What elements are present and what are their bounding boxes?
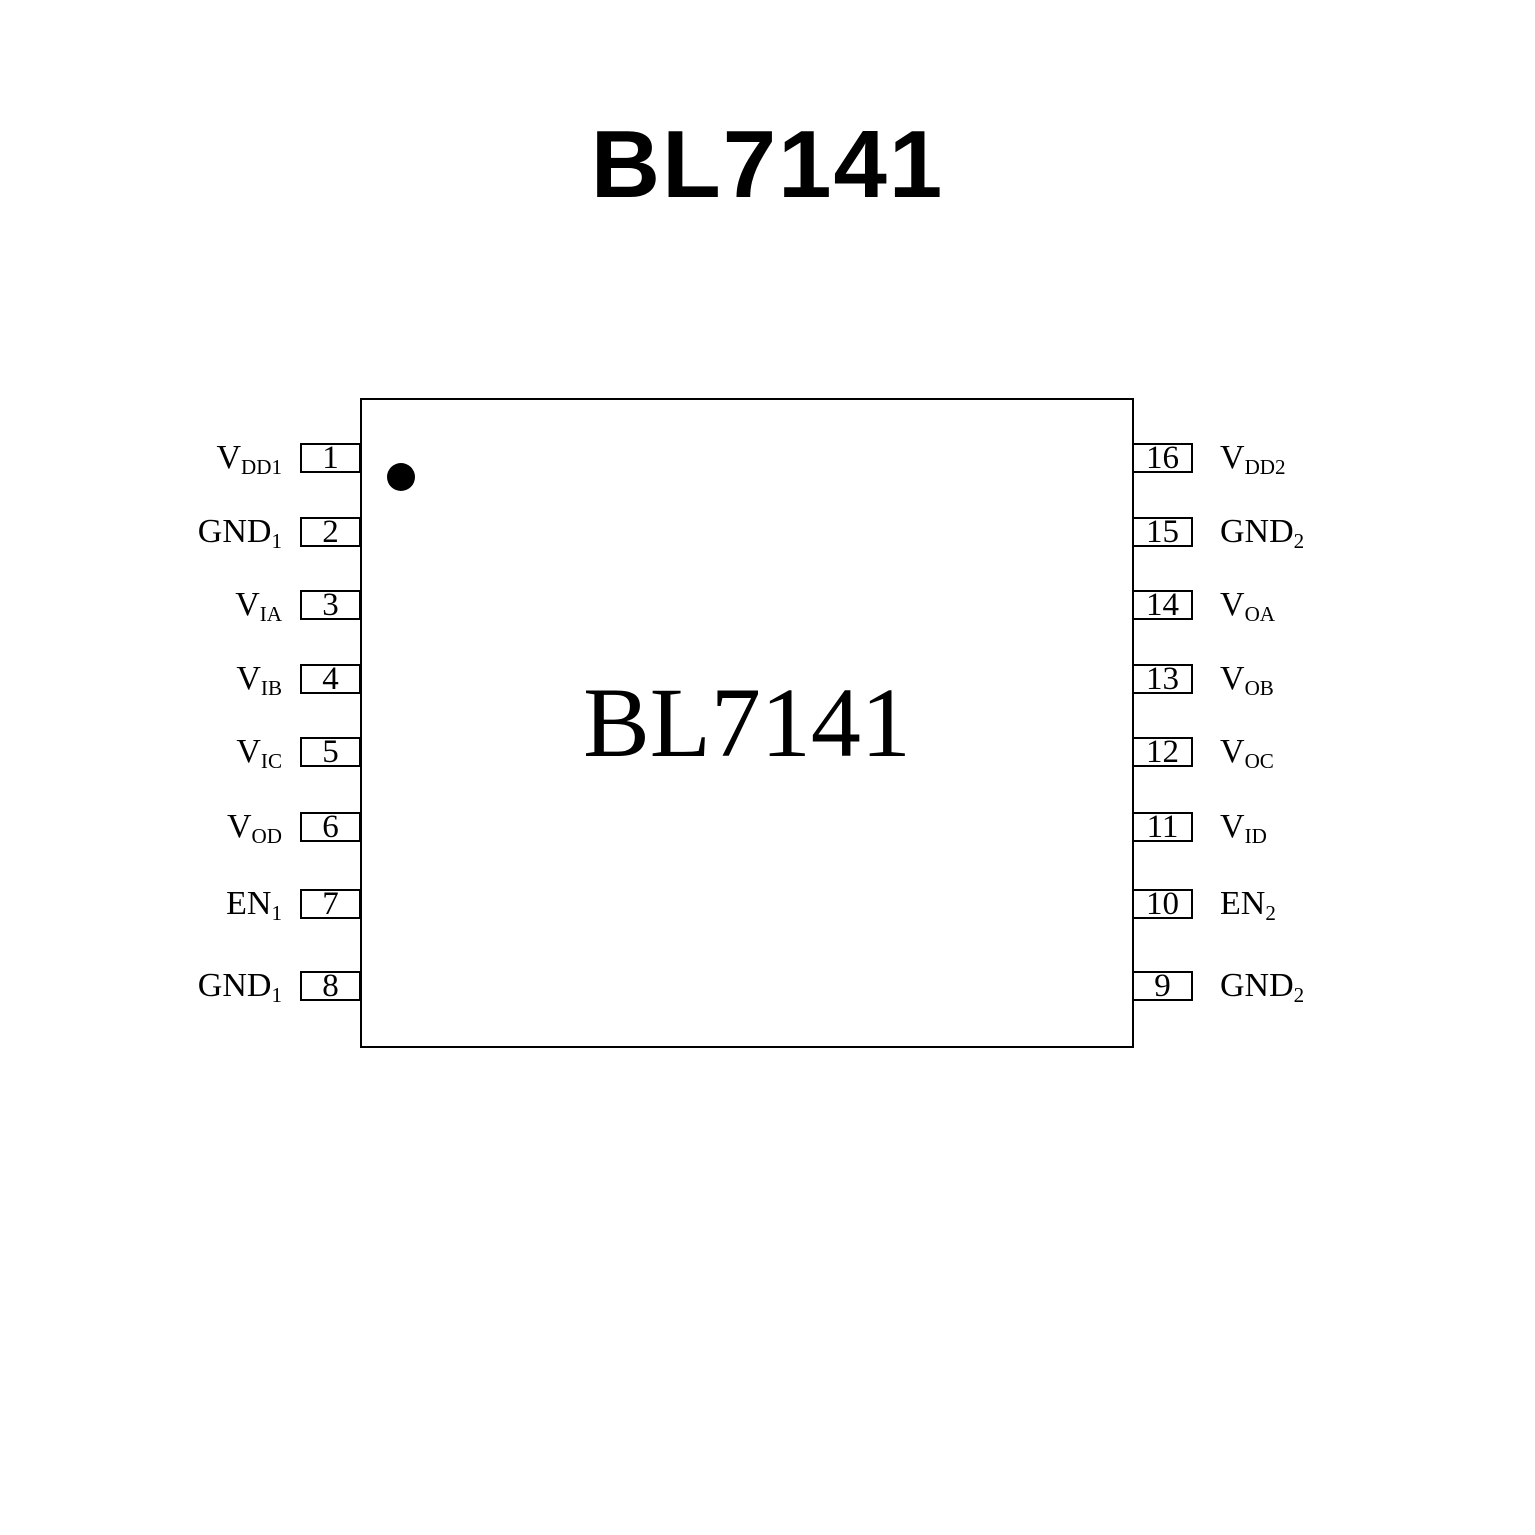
pin-label: VIC [58, 735, 300, 769]
pin-number: 5 [322, 736, 339, 769]
pin-row-right-12: 12 VOC [1132, 737, 1477, 767]
pin-number: 4 [322, 663, 339, 696]
pin-number: 15 [1146, 516, 1179, 549]
pin-row-left-7: EN1 7 [58, 889, 361, 919]
pin-row-right-16: 16 VDD2 [1132, 443, 1477, 473]
pin-row-left-3: VIA 3 [58, 590, 361, 620]
pin-label: VIB [58, 662, 300, 696]
page-title: BL7141 [0, 112, 1535, 218]
pin-box: 10 [1132, 889, 1193, 919]
pin-row-right-10: 10 EN2 [1132, 889, 1477, 919]
pin-label: VOA [1193, 588, 1275, 622]
pin-row-right-9: 9 GND2 [1132, 971, 1477, 1001]
pin-label: VIA [58, 588, 300, 622]
pin-box: 4 [300, 664, 361, 694]
pin-number: 2 [322, 516, 339, 549]
pin-number: 14 [1146, 589, 1179, 622]
pin-label: VDD2 [1193, 441, 1286, 475]
pin-number: 3 [322, 589, 339, 622]
pin-row-left-2: GND1 2 [58, 517, 361, 547]
pin-number: 16 [1146, 442, 1179, 475]
pin-row-left-5: VIC 5 [58, 737, 361, 767]
pin-label: VOD [58, 810, 300, 844]
pin-box: 3 [300, 590, 361, 620]
pin-number: 10 [1146, 888, 1179, 921]
pin-box: 6 [300, 812, 361, 842]
pin-number: 9 [1154, 970, 1171, 1003]
pin-number: 13 [1146, 663, 1179, 696]
pin-box: 5 [300, 737, 361, 767]
pin-row-left-8: GND1 8 [58, 971, 361, 1001]
pin-box: 9 [1132, 971, 1193, 1001]
pin-row-right-14: 14 VOA [1132, 590, 1477, 620]
pin-label: VOB [1193, 662, 1274, 696]
pinout-diagram-page: BL7141 BL7141 VDD1 1 GND1 2 VIA 3 VIB 4 … [0, 0, 1535, 1535]
pin-row-left-6: VOD 6 [58, 812, 361, 842]
pin-label: GND1 [58, 515, 300, 549]
pin-label: EN2 [1193, 887, 1276, 921]
pin-row-left-1: VDD1 1 [58, 443, 361, 473]
pin-row-right-13: 13 VOB [1132, 664, 1477, 694]
pin-label: GND1 [58, 969, 300, 1003]
pin-box: 2 [300, 517, 361, 547]
pin-box: 11 [1132, 812, 1193, 842]
pin-label: GND2 [1193, 969, 1304, 1003]
pin-label: GND2 [1193, 515, 1304, 549]
pin-box: 14 [1132, 590, 1193, 620]
pin-box: 13 [1132, 664, 1193, 694]
pin-box: 12 [1132, 737, 1193, 767]
pin-box: 15 [1132, 517, 1193, 547]
pin-number: 8 [322, 970, 339, 1003]
pin-box: 1 [300, 443, 361, 473]
pin-label: VDD1 [58, 441, 300, 475]
pin-box: 16 [1132, 443, 1193, 473]
pin-row-right-11: 11 VID [1132, 812, 1477, 842]
pin-number: 12 [1146, 736, 1179, 769]
pin-number: 1 [322, 442, 339, 475]
pin-number: 6 [322, 811, 339, 844]
pin1-marker-dot-icon [387, 463, 415, 491]
pin-number: 7 [322, 888, 339, 921]
pin-row-right-15: 15 GND2 [1132, 517, 1477, 547]
pin-label: EN1 [58, 887, 300, 921]
pin-box: 8 [300, 971, 361, 1001]
pin-label: VID [1193, 810, 1267, 844]
chip-body [360, 398, 1134, 1048]
pin-number: 11 [1147, 811, 1179, 844]
pin-box: 7 [300, 889, 361, 919]
pin-row-left-4: VIB 4 [58, 664, 361, 694]
pin-label: VOC [1193, 735, 1274, 769]
